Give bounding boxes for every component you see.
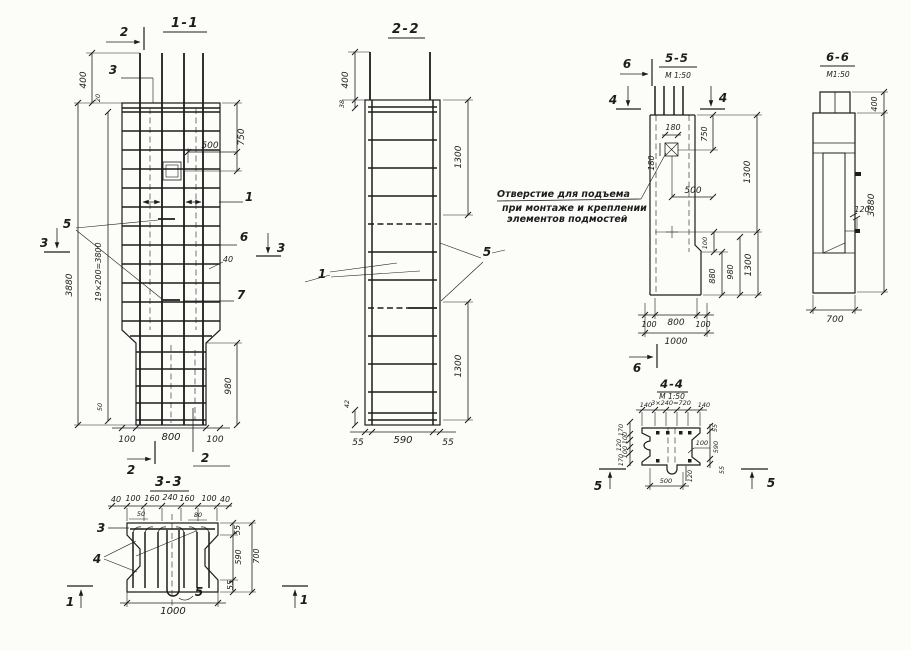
dim-40: 40 bbox=[223, 255, 233, 264]
section-1-1-title: 1-1 bbox=[171, 16, 199, 31]
dims-6-6-step: 120 bbox=[845, 205, 870, 231]
section-5-5-title: 5-5 bbox=[665, 51, 689, 65]
dim-980: 980 bbox=[726, 264, 735, 279]
note-line-3: элементов подмостей bbox=[507, 214, 628, 225]
note-annotation: Отверстие для подъема при монтаже и креп… bbox=[497, 153, 666, 225]
dim-500: 500 bbox=[660, 477, 672, 485]
dim-80s: 80 bbox=[194, 511, 202, 519]
cross-section-3-3-body bbox=[127, 514, 218, 612]
callout-5-label: 5 bbox=[195, 585, 203, 599]
dim-180-h: 180 bbox=[665, 123, 680, 132]
dim-3x240: 3×240=720 bbox=[651, 399, 691, 407]
section-2-2: 2-2 400 38 42 1300 1300 55 bbox=[305, 22, 505, 448]
dims-4-4-right: 55 590 55 bbox=[707, 423, 726, 474]
dim-240: 240 bbox=[162, 493, 177, 502]
section-3-3: 3-3 40 100 160 240 160 100 40 50 80 3 4 … bbox=[66, 475, 308, 617]
marker-6-top-label: 6 bbox=[623, 57, 631, 71]
dim-100-left: 100 bbox=[118, 435, 135, 445]
dim-800: 800 bbox=[161, 432, 180, 443]
dim-400: 400 bbox=[79, 71, 89, 88]
dim-3880: 3880 bbox=[65, 273, 75, 296]
dim-55-bottom: 55 bbox=[718, 466, 726, 474]
column-elevation-1-1 bbox=[122, 53, 220, 425]
dim-170b: 170 bbox=[617, 454, 625, 466]
callout-7-label: 7 bbox=[237, 288, 246, 302]
dims-6-6-bottom: 700 bbox=[806, 295, 862, 325]
dim-55-left: 55 bbox=[352, 438, 364, 448]
dim-100-right: 100 bbox=[206, 435, 223, 445]
callout-3-label: 3 bbox=[97, 521, 105, 535]
dim-50: 50 bbox=[96, 403, 104, 411]
dim-400: 400 bbox=[341, 71, 351, 88]
callout-5-label: 5 bbox=[483, 245, 491, 259]
dim-140-right: 140 bbox=[698, 401, 710, 409]
marker-4-right-label: 4 bbox=[718, 91, 727, 105]
section-marker-1-left: 1 bbox=[66, 586, 93, 609]
embedded-plate-top bbox=[855, 172, 861, 176]
dim-1300-lower: 1300 bbox=[454, 354, 464, 377]
marker-3-right-label: 3 bbox=[277, 241, 285, 255]
u-shaped-bar bbox=[167, 530, 179, 596]
section-marker-5-right: 5 bbox=[741, 469, 775, 490]
callouts-3-3: 3 4 5 bbox=[92, 521, 203, 600]
lifting-hole bbox=[163, 162, 181, 180]
section-3-3-title: 3-3 bbox=[155, 475, 183, 490]
dim-100-left: 100 bbox=[641, 320, 656, 329]
dim-55-top: 55 bbox=[711, 424, 719, 432]
section-2-2-title: 2-2 bbox=[392, 22, 420, 37]
dim-400: 400 bbox=[870, 96, 879, 111]
dim-100a: 100 bbox=[125, 494, 140, 503]
dim-1300-upper: 1300 bbox=[743, 160, 753, 183]
marker-6-bottom-label: 6 bbox=[633, 361, 641, 375]
dim-700: 700 bbox=[252, 548, 261, 563]
dim-500: 500 bbox=[684, 186, 701, 196]
column-hatched-view-6-6 bbox=[813, 92, 861, 293]
dim-160a: 160 bbox=[144, 494, 159, 503]
section-marker-3-right: 3 bbox=[256, 233, 285, 256]
column-elevation-2-2 bbox=[365, 52, 440, 425]
dim-120: 120 bbox=[686, 470, 694, 482]
dim-880: 880 bbox=[708, 268, 717, 283]
dims-3-3-right: 55 590 55 700 bbox=[220, 520, 261, 595]
dim-100-step: 100 bbox=[701, 237, 709, 249]
dim-50s: 50 bbox=[137, 510, 145, 518]
dim-180-v: 180 bbox=[647, 155, 656, 170]
callout-4-label: 4 bbox=[92, 552, 101, 566]
callout-1-label: 1 bbox=[318, 267, 326, 281]
section-6-6-scale: М1:50 bbox=[826, 70, 850, 79]
dims-4-4-left: 170 100 120 100 170 bbox=[615, 419, 633, 467]
dim-700: 700 bbox=[826, 315, 843, 325]
dim-40b: 40 bbox=[220, 495, 230, 504]
dims-2-2-right: 1300 1300 bbox=[443, 97, 473, 423]
dim-750: 750 bbox=[700, 126, 709, 141]
dims-6-6-right: 400 3880 bbox=[852, 89, 888, 295]
callout-6-label: 6 bbox=[240, 230, 248, 244]
section-6-6-title: 6-6 bbox=[826, 50, 850, 64]
dim-100b: 100 bbox=[201, 494, 216, 503]
dim-55-bottom: 55 bbox=[226, 580, 235, 590]
marker-3-left-label: 3 bbox=[40, 236, 48, 250]
dim-20: 20 bbox=[94, 94, 102, 102]
dim-1300-lower: 1300 bbox=[744, 253, 754, 276]
dims-1-1-left: 400 20 3880 19×200=3800 50 bbox=[65, 50, 140, 428]
dim-55-right: 55 bbox=[442, 438, 454, 448]
section-6-6: 6-6 М1:50 120 400 3880 700 bbox=[806, 50, 888, 325]
dim-500: 500 bbox=[201, 141, 218, 151]
dim-1000: 1000 bbox=[160, 606, 185, 617]
dim-750: 750 bbox=[237, 128, 247, 145]
cut-2-label: 2 bbox=[201, 451, 209, 465]
marker-2-label: 2 bbox=[120, 25, 128, 39]
note-line-1: Отверстие для подъема bbox=[497, 189, 630, 200]
dim-55-top: 55 bbox=[233, 525, 242, 535]
dim-800: 800 bbox=[667, 318, 684, 328]
dim-100-inner: 100 bbox=[696, 439, 708, 447]
dims-3-3-top: 40 100 160 240 160 100 40 50 80 bbox=[108, 493, 232, 521]
dim-590: 590 bbox=[712, 441, 720, 453]
dim-160b: 160 bbox=[179, 494, 194, 503]
section-marker-5-left: 5 bbox=[594, 469, 626, 493]
marker-1-left-label: 1 bbox=[66, 595, 74, 609]
dims-2-2-bottom: 55 590 55 bbox=[350, 429, 456, 448]
callout-100-inner: 100 bbox=[688, 439, 710, 453]
dims-4-4-bottom: 500 120 bbox=[645, 466, 694, 490]
dim-590: 590 bbox=[393, 435, 412, 446]
cross-section-4-4-body bbox=[642, 428, 700, 474]
section-marker-4-left: 4 bbox=[608, 86, 641, 109]
section-marker-2-top: 2 bbox=[106, 25, 144, 50]
dim-980: 980 bbox=[224, 377, 234, 394]
callout-3-label: 3 bbox=[109, 63, 117, 77]
section-marker-3-left: 3 bbox=[40, 228, 70, 252]
section-4-4: 4-4 М 1:50 140 3×240=720 140 100 55 590 … bbox=[594, 377, 775, 493]
section-marker-2-bottom: 2 bbox=[127, 441, 155, 477]
dim-1300-upper: 1300 bbox=[454, 145, 464, 168]
section-marker-6-top: 6 bbox=[620, 57, 652, 86]
section-marker-6-bottom: 6 bbox=[629, 344, 657, 375]
dims-5-5-right-lower: 100 880 980 1300 bbox=[701, 229, 762, 298]
drawing-sheet: 1-1 2 3 400 20 3880 19×200 bbox=[0, 0, 911, 651]
dims-5-5-bottom: 100 800 100 1000 bbox=[638, 298, 714, 347]
dim-38: 38 bbox=[338, 100, 346, 108]
dim-1000: 1000 bbox=[665, 337, 688, 347]
section-1-1: 1-1 2 3 400 20 3880 19×200 bbox=[40, 16, 285, 477]
note-line-2: при монтаже и креплении bbox=[502, 203, 647, 214]
callout-3-top: 3 bbox=[109, 63, 153, 103]
dim-42: 42 bbox=[343, 400, 351, 408]
dim-3880: 3880 bbox=[867, 193, 877, 216]
marker-4-left-label: 4 bbox=[608, 93, 617, 107]
marker-5-right-label: 5 bbox=[767, 476, 775, 490]
section-marker-1-right: 1 bbox=[282, 586, 308, 608]
section-4-4-title: 4-4 bbox=[659, 377, 684, 391]
section-5-5-scale: М 1:50 bbox=[665, 71, 691, 80]
dim-100-right: 100 bbox=[695, 320, 710, 329]
dim-19x200: 19×200=3800 bbox=[94, 242, 103, 301]
marker-1-right-label: 1 bbox=[300, 593, 308, 607]
marker-2-bottom-label: 2 bbox=[127, 463, 135, 477]
section-marker-4-right: 4 bbox=[700, 86, 727, 109]
dims-5-5-right-upper: 750 1300 bbox=[697, 112, 762, 235]
marker-5-left-label: 5 bbox=[594, 479, 602, 493]
dim-40a: 40 bbox=[111, 495, 121, 504]
technical-drawing: 1-1 2 3 400 20 3880 19×200 bbox=[0, 0, 911, 651]
dims-4-4-top: 140 3×240=720 140 bbox=[636, 399, 710, 426]
dim-590: 590 bbox=[234, 549, 243, 564]
callout-1-label: 1 bbox=[245, 190, 253, 204]
callout-5-label: 5 bbox=[63, 217, 71, 231]
dims-1-1-bottom: 100 800 100 bbox=[112, 425, 230, 445]
